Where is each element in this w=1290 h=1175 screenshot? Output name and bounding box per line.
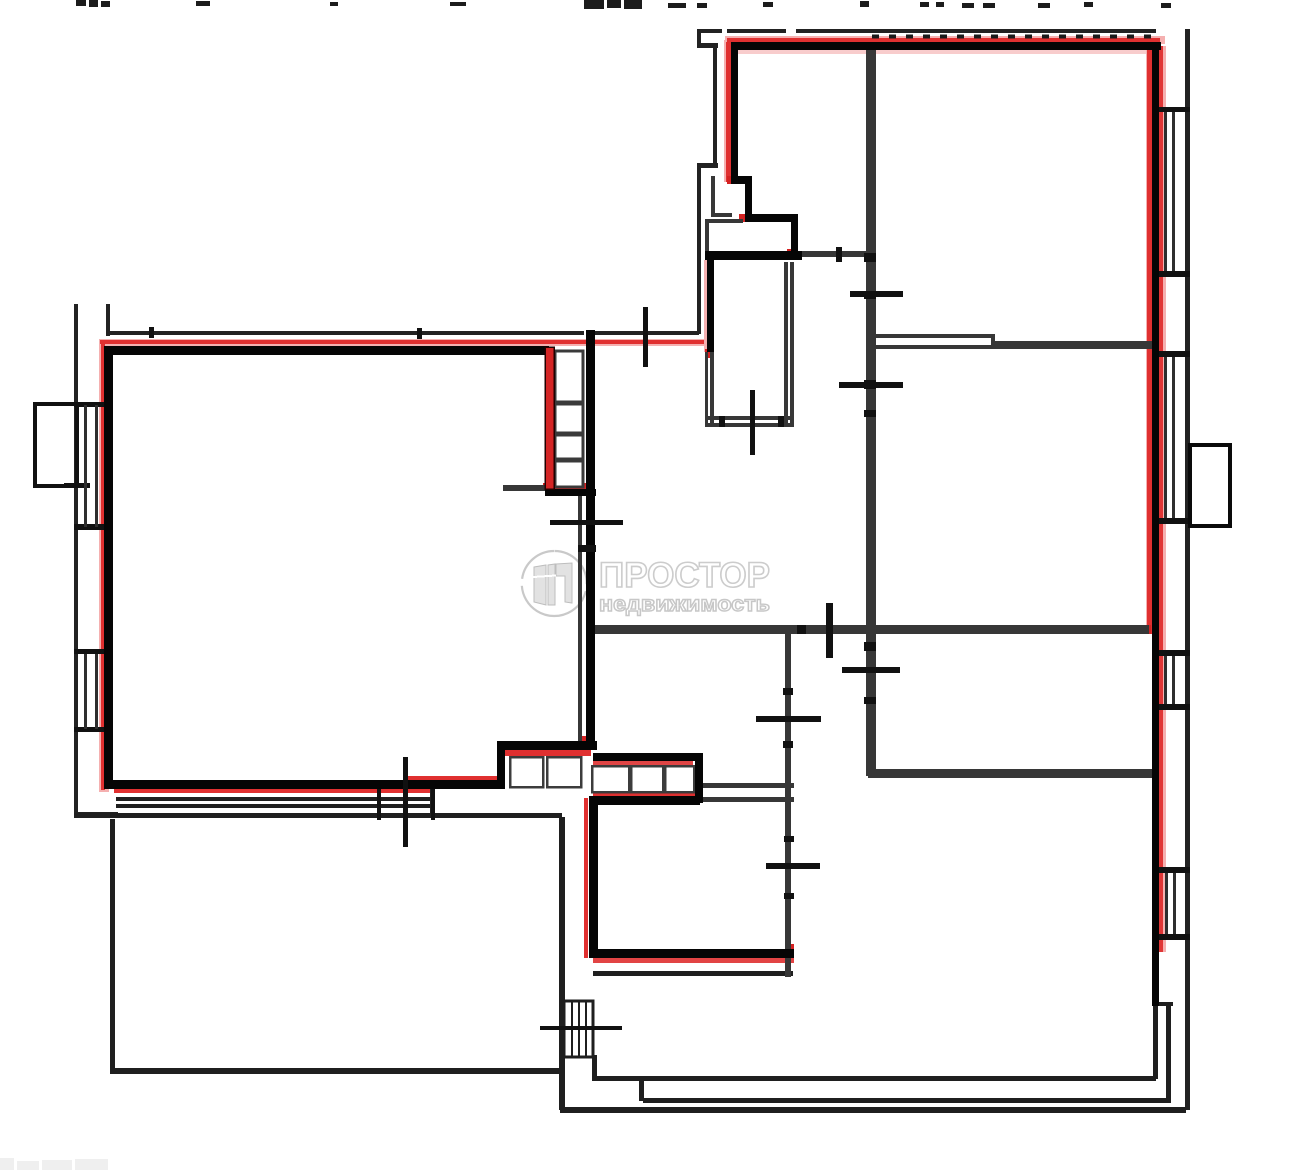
svg-text:недвижимость: недвижимость — [599, 593, 770, 616]
svg-text:ПРОСТОР: ПРОСТОР — [599, 556, 770, 595]
